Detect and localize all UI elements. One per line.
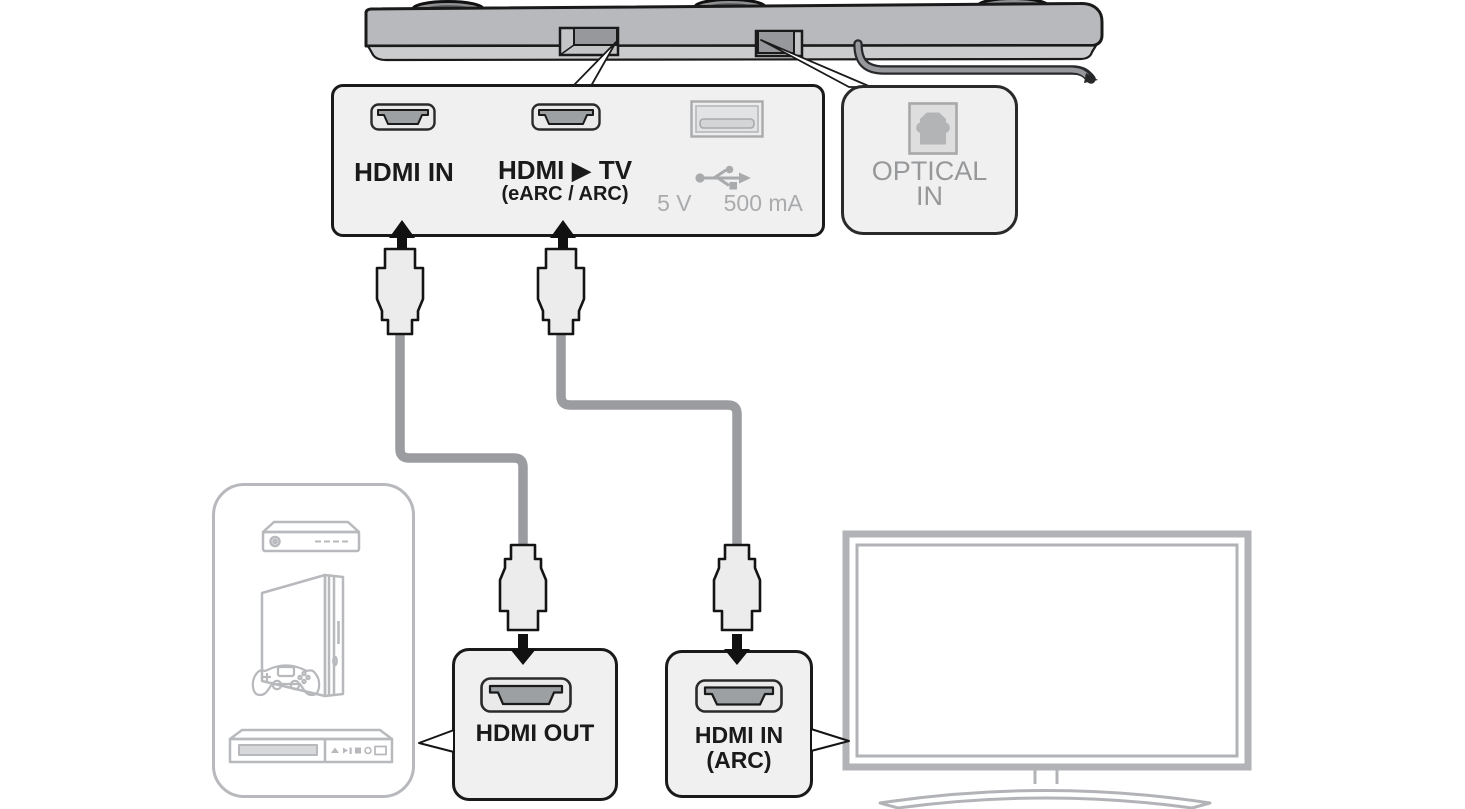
hdmi-plug-up-left bbox=[377, 249, 423, 334]
soundbar-port-notch-1 bbox=[560, 28, 618, 55]
optical-label-line2: IN bbox=[844, 184, 1015, 209]
source-devices-icons bbox=[215, 486, 412, 795]
source-devices-box bbox=[212, 483, 415, 798]
callout-hdmi-in-arc-to-tv bbox=[811, 729, 849, 751]
soundbar-feet bbox=[413, 0, 1048, 17]
hdmi-cable-right bbox=[561, 330, 737, 547]
hdmi-tv-label: HDMI ▶ TV bbox=[486, 157, 644, 184]
hdmi-in-port-icon bbox=[370, 103, 436, 131]
hdmi-cable-left bbox=[400, 330, 523, 547]
hdmi-in-arc-label-line1: HDMI IN bbox=[668, 723, 810, 748]
hdmi-out-port-icon bbox=[480, 677, 572, 713]
soundbar-port-notch-2 bbox=[756, 31, 802, 56]
hdmi-tv-port-icon bbox=[531, 103, 601, 131]
tv-stand bbox=[880, 768, 1210, 808]
hdmi-in-arc-port-icon bbox=[695, 679, 783, 713]
soundbar-rear-panel: HDMI IN HDMI ▶ TV (eARC / ARC) 5 V500 mA bbox=[331, 84, 825, 237]
usb-port-icon bbox=[690, 100, 764, 138]
optical-in-panel: OPTICAL IN bbox=[841, 85, 1018, 235]
disc-player-icon bbox=[230, 730, 392, 762]
hdmi-plug-up-right bbox=[538, 249, 584, 334]
soundbar-illustration bbox=[366, 0, 1102, 60]
hdmi-in-label: HDMI IN bbox=[334, 157, 474, 188]
connection-diagram: HDMI IN HDMI ▶ TV (eARC / ARC) 5 V500 mA bbox=[0, 0, 1465, 809]
set-top-box-icon bbox=[263, 522, 359, 551]
hdmi-in-arc-panel: HDMI IN (ARC) bbox=[665, 650, 813, 798]
hdmi-out-label: HDMI OUT bbox=[455, 720, 615, 748]
hdmi-tv-sublabel: (eARC / ARC) bbox=[486, 184, 644, 205]
hdmi-in-arc-label-line2: (ARC) bbox=[668, 748, 810, 773]
usb-power-rating: 5 V500 mA bbox=[639, 190, 821, 217]
leader-callout-main-panel bbox=[573, 42, 616, 86]
optical-port-icon bbox=[908, 102, 958, 155]
soundbar-body bbox=[366, 3, 1102, 46]
hdmi-plug-down-left bbox=[500, 545, 546, 630]
power-cable bbox=[858, 44, 1098, 83]
usb-trident-icon bbox=[694, 164, 756, 192]
hdmi-out-panel: HDMI OUT bbox=[452, 648, 618, 801]
callout-hdmi-out-to-devices bbox=[419, 730, 454, 752]
soundbar-bottom-lip bbox=[368, 46, 1096, 61]
leader-callout-optical-panel bbox=[761, 40, 871, 87]
hdmi-plug-down-right bbox=[714, 545, 760, 630]
tv-illustration bbox=[846, 534, 1248, 808]
